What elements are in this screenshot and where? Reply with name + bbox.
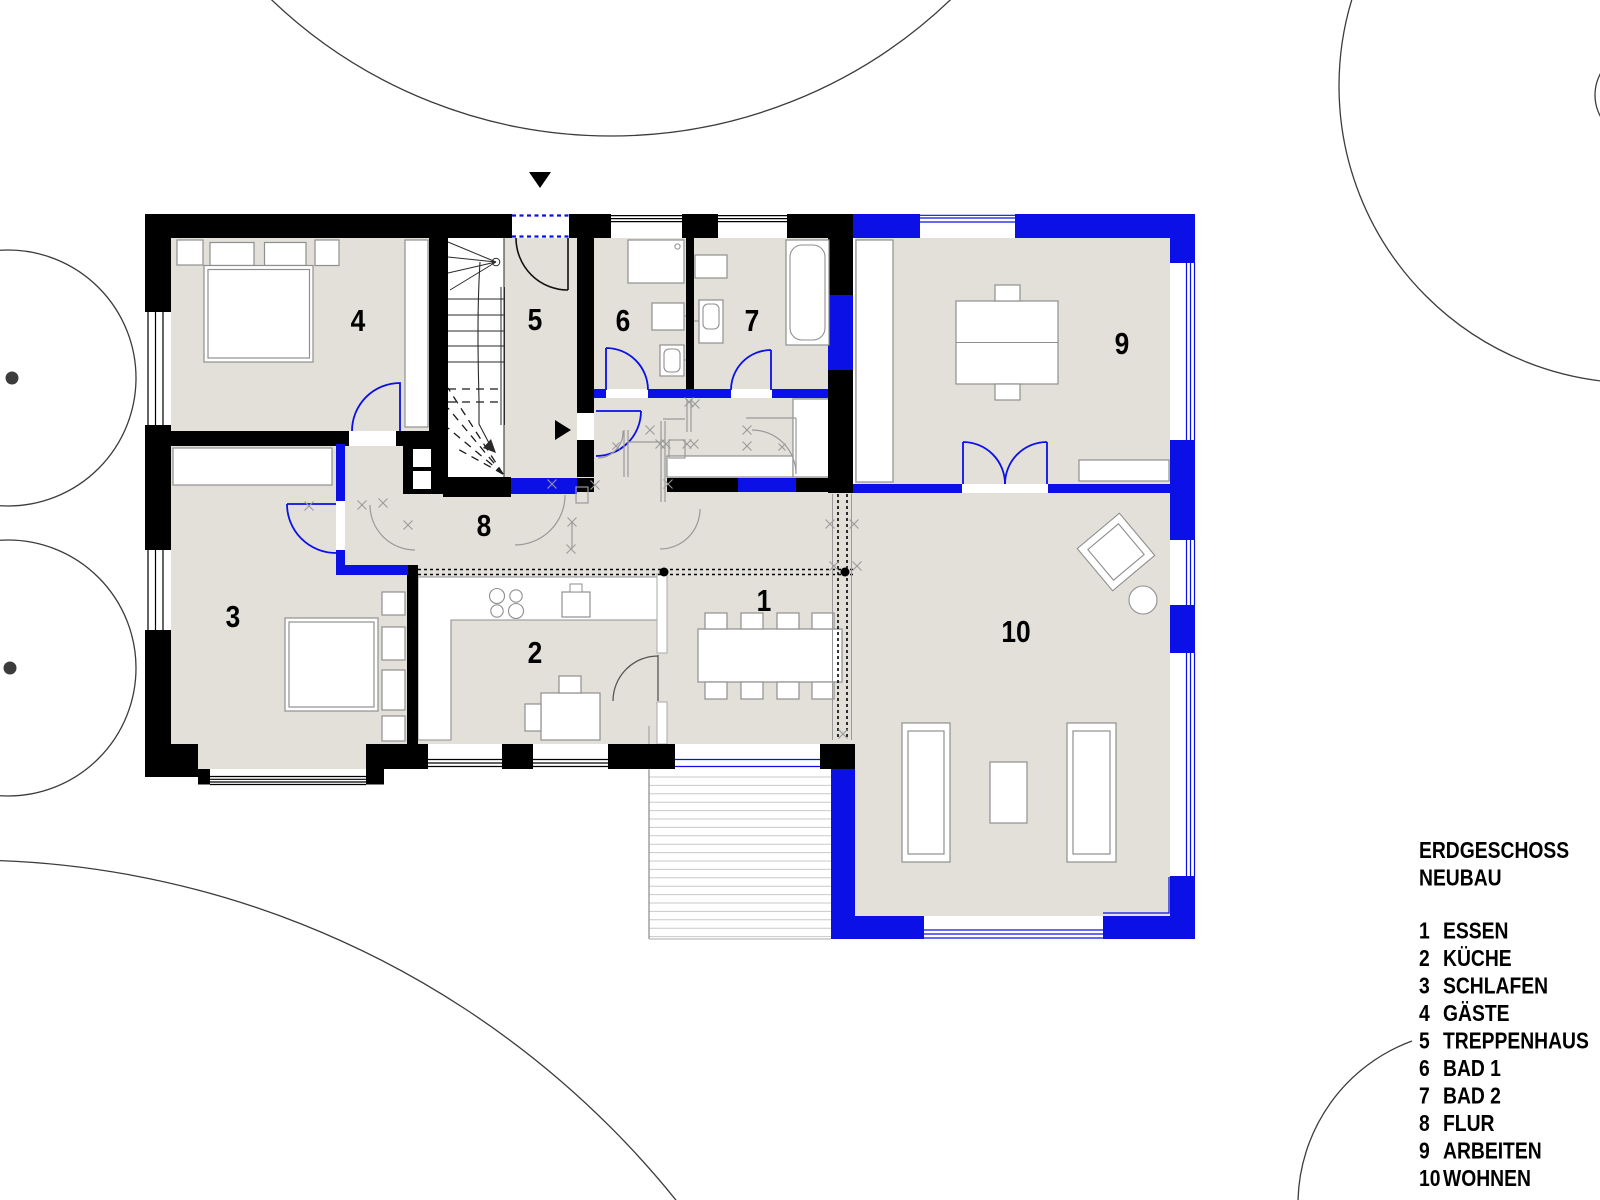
svg-text:ARBEITEN: ARBEITEN [1443,1139,1542,1164]
svg-text:BAD 1: BAD 1 [1443,1057,1501,1082]
svg-text:3: 3 [226,600,241,634]
svg-text:9: 9 [1115,327,1130,361]
svg-text:5: 5 [528,303,543,337]
svg-text:KÜCHE: KÜCHE [1443,944,1512,971]
svg-text:9: 9 [1419,1139,1430,1164]
svg-text:2: 2 [528,636,543,670]
svg-text:TREPPENHAUS: TREPPENHAUS [1443,1029,1589,1054]
svg-text:ESSEN: ESSEN [1443,919,1508,944]
svg-text:NEUBAU: NEUBAU [1419,866,1502,891]
svg-text:ERDGESCHOSS: ERDGESCHOSS [1419,839,1569,864]
svg-text:6: 6 [616,304,631,338]
svg-text:SCHLAFEN: SCHLAFEN [1443,974,1548,999]
svg-text:1: 1 [1419,919,1430,944]
svg-text:3: 3 [1419,974,1430,999]
svg-text:8: 8 [1419,1112,1430,1137]
svg-text:5: 5 [1419,1029,1430,1054]
svg-text:4: 4 [351,304,366,338]
svg-text:2: 2 [1419,947,1430,972]
svg-text:7: 7 [1419,1084,1430,1109]
svg-text:GÄSTE: GÄSTE [1443,1000,1510,1026]
svg-text:BAD 2: BAD 2 [1443,1084,1501,1109]
svg-text:8: 8 [477,509,492,543]
svg-text:10: 10 [1001,615,1030,649]
svg-text:WOHNEN: WOHNEN [1443,1167,1531,1192]
svg-text:FLUR: FLUR [1443,1112,1494,1137]
svg-text:6: 6 [1419,1057,1430,1082]
svg-text:1: 1 [757,584,772,618]
svg-text:7: 7 [745,304,760,338]
svg-text:4: 4 [1419,1002,1430,1027]
svg-text:10: 10 [1419,1167,1440,1192]
